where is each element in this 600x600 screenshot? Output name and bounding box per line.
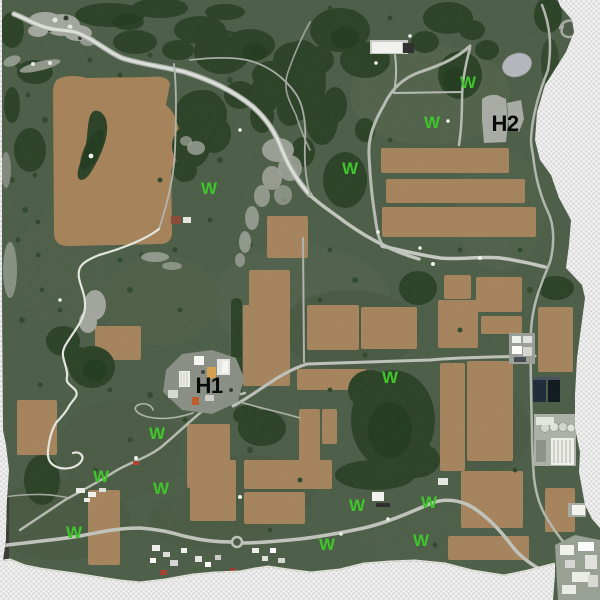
svg-text:W: W	[319, 535, 336, 554]
svg-text:W: W	[342, 159, 359, 178]
svg-text:W: W	[153, 479, 170, 498]
svg-text:W: W	[424, 113, 441, 132]
svg-text:H2: H2	[491, 111, 518, 136]
svg-text:W: W	[382, 368, 399, 387]
svg-text:W: W	[413, 531, 430, 550]
svg-text:W: W	[349, 496, 366, 515]
svg-text:H1: H1	[195, 373, 222, 398]
svg-text:W: W	[66, 523, 83, 542]
svg-text:W: W	[149, 424, 166, 443]
svg-text:W: W	[201, 179, 218, 198]
svg-text:W: W	[93, 467, 110, 486]
svg-text:W: W	[421, 493, 438, 512]
svg-text:W: W	[460, 73, 477, 92]
